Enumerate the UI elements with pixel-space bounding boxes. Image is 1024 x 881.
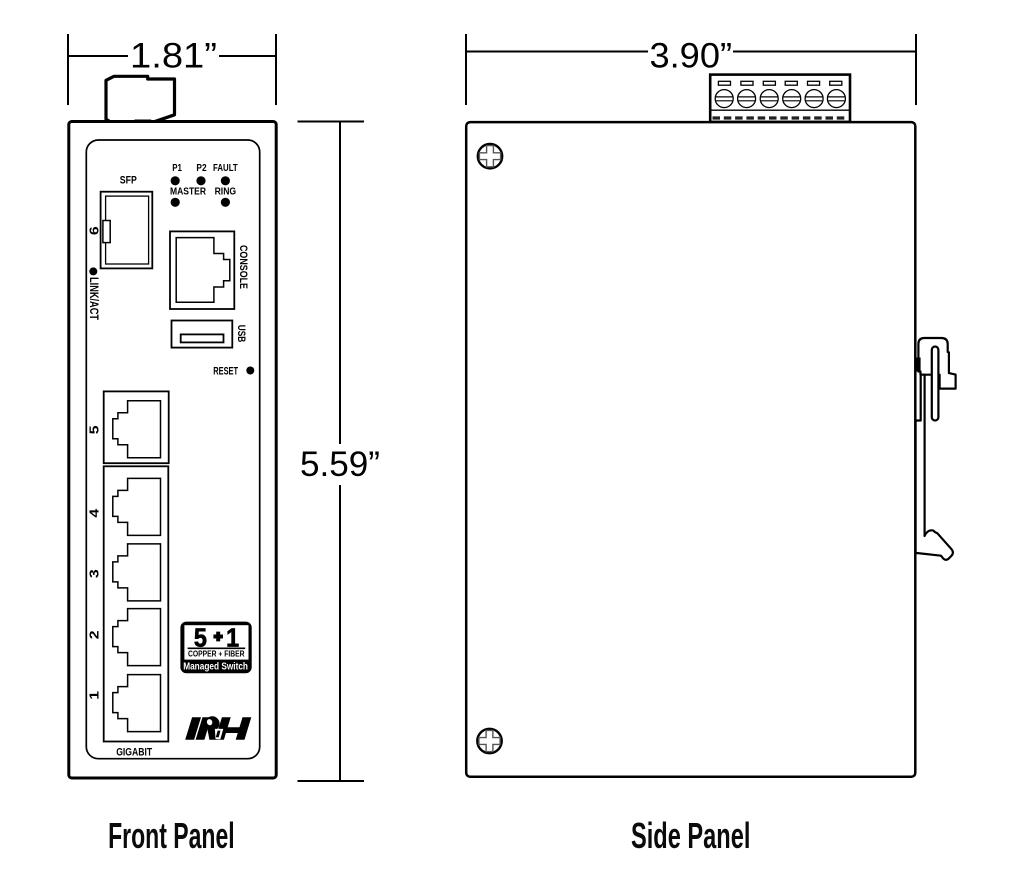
svg-text:1: 1 — [87, 691, 101, 700]
svg-text:MASTER: MASTER — [170, 186, 206, 197]
svg-text:2: 2 — [87, 630, 101, 639]
svg-text:3.90”: 3.90” — [650, 37, 733, 76]
svg-text:1.81”: 1.81” — [130, 37, 217, 76]
svg-text:Front Panel: Front Panel — [108, 815, 235, 856]
svg-text:Side Panel: Side Panel — [631, 815, 750, 856]
svg-text:GIGABIT: GIGABIT — [116, 747, 152, 759]
svg-text:RING: RING — [215, 186, 237, 197]
svg-text:SFP: SFP — [120, 174, 137, 186]
svg-text:RESET: RESET — [213, 366, 238, 378]
svg-text:USB: USB — [235, 325, 247, 343]
svg-text:Managed Switch: Managed Switch — [183, 660, 248, 672]
svg-text:COPPER + FIBER: COPPER + FIBER — [188, 648, 245, 658]
svg-text:5: 5 — [87, 425, 101, 434]
svg-text:P2: P2 — [196, 163, 206, 174]
svg-text:4: 4 — [87, 508, 101, 518]
svg-text:3: 3 — [87, 569, 101, 578]
svg-text:5.59”: 5.59” — [300, 445, 380, 484]
svg-text:FAULT: FAULT — [213, 163, 238, 174]
svg-text:P1: P1 — [172, 163, 182, 174]
svg-text:6: 6 — [87, 226, 101, 235]
svg-text:CONSOLE: CONSOLE — [237, 245, 249, 289]
svg-text:LINK/ACT: LINK/ACT — [87, 277, 99, 320]
